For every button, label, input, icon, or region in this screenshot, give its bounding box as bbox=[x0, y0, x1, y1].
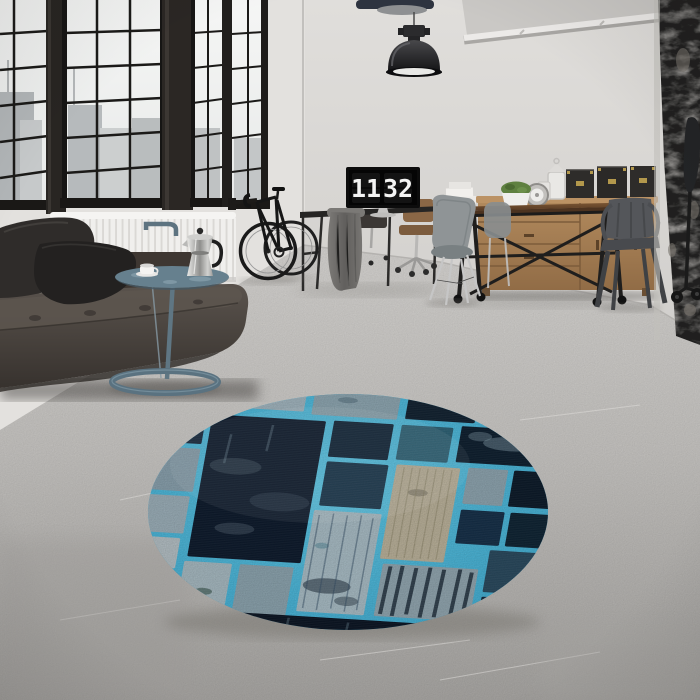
photo-vignette bbox=[0, 0, 700, 700]
loft-room-photo: 11 32 bbox=[0, 0, 700, 700]
